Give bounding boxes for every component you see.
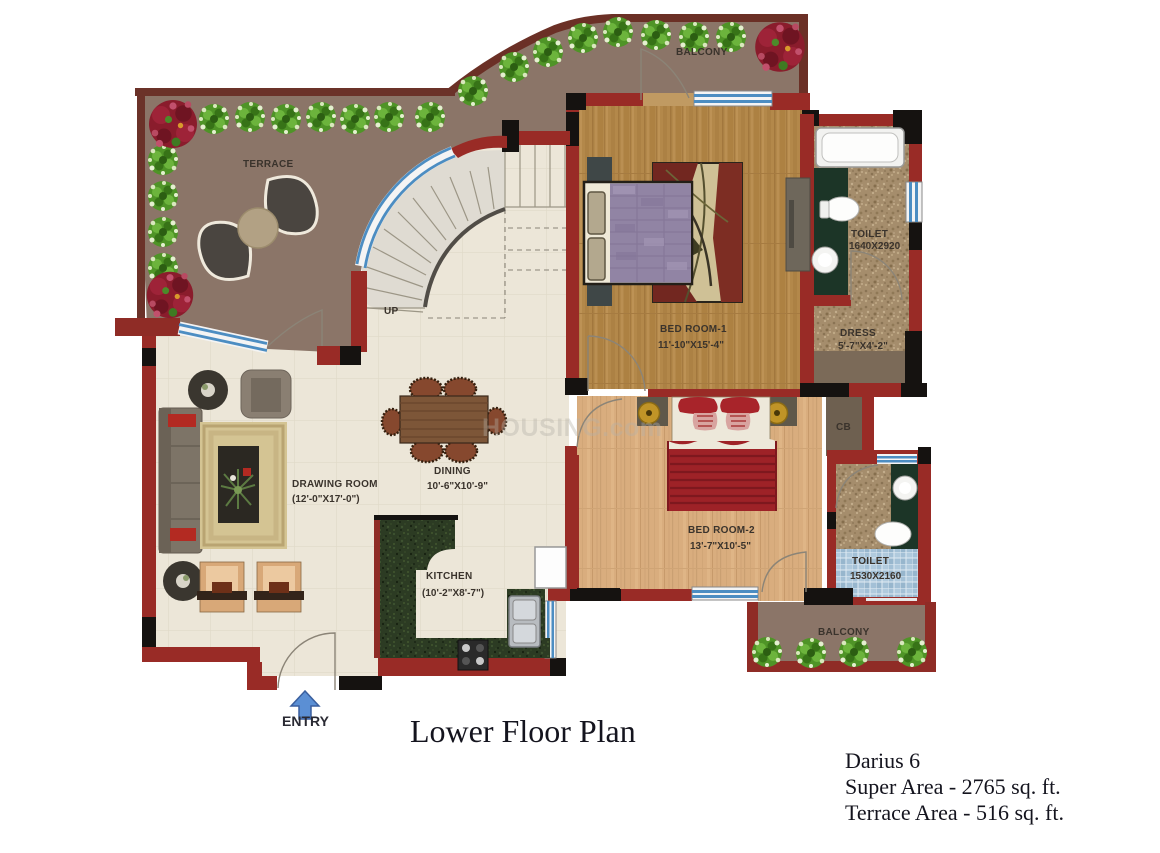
- svg-text:BALCONY: BALCONY: [676, 47, 728, 58]
- svg-text:5'-7"X4'-2": 5'-7"X4'-2": [838, 341, 888, 352]
- svg-text:13'-7"X10'-5": 13'-7"X10'-5": [690, 541, 751, 552]
- svg-text:BALCONY: BALCONY: [818, 627, 870, 638]
- svg-text:CB: CB: [836, 422, 851, 433]
- svg-text:BED ROOM-2: BED ROOM-2: [688, 525, 755, 536]
- svg-text:DINING: DINING: [434, 466, 471, 477]
- svg-text:BED ROOM-1: BED ROOM-1: [660, 324, 727, 335]
- svg-text:(10'-2"X8'-7"): (10'-2"X8'-7"): [422, 588, 484, 599]
- svg-text:Terrace Area - 516 sq. ft.: Terrace Area - 516 sq. ft.: [845, 800, 1064, 825]
- svg-text:1530X2160: 1530X2160: [850, 571, 902, 582]
- svg-text:KITCHEN: KITCHEN: [426, 571, 473, 582]
- svg-text:Super Area - 2765 sq. ft.: Super Area - 2765 sq. ft.: [845, 774, 1061, 799]
- svg-text:DRAWING ROOM: DRAWING ROOM: [292, 479, 378, 490]
- svg-text:Lower Floor Plan: Lower Floor Plan: [410, 713, 636, 749]
- svg-text:TOILET: TOILET: [851, 229, 888, 240]
- svg-text:TERRACE: TERRACE: [243, 159, 293, 170]
- svg-text:TOILET: TOILET: [852, 556, 889, 567]
- svg-text:HOUSING.com: HOUSING.com: [482, 414, 663, 442]
- svg-text:1640X2920: 1640X2920: [849, 241, 901, 252]
- svg-text:UP: UP: [384, 306, 399, 317]
- svg-text:Darius 6: Darius 6: [845, 748, 920, 773]
- svg-text:DRESS: DRESS: [840, 328, 876, 339]
- svg-text:10'-6"X10'-9": 10'-6"X10'-9": [427, 481, 488, 492]
- svg-text:11'-10"X15'-4": 11'-10"X15'-4": [658, 340, 724, 351]
- svg-text:(12'-0"X17'-0"): (12'-0"X17'-0"): [292, 494, 360, 505]
- svg-text:ENTRY: ENTRY: [282, 713, 330, 729]
